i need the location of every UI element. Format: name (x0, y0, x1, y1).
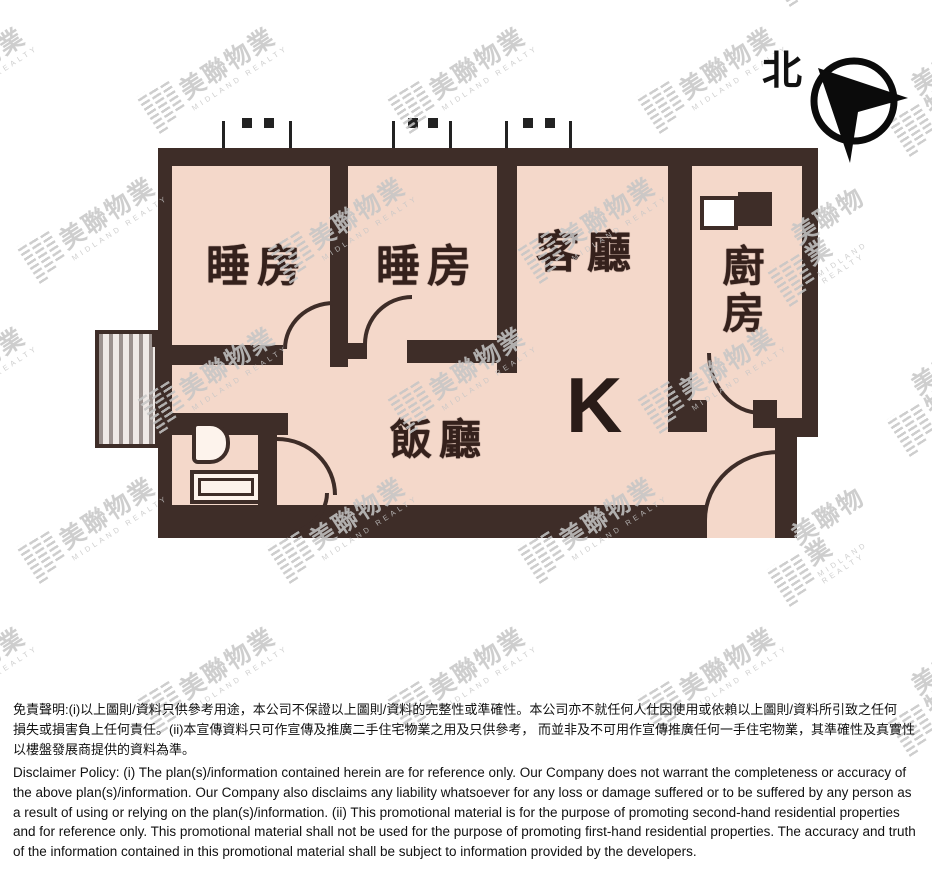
window-tick (222, 121, 225, 148)
compass-icon (808, 54, 912, 166)
midland-logo-icon (886, 400, 932, 457)
window-sash (408, 118, 418, 128)
watermark-subtext: MIDLAND REALTY (816, 217, 909, 285)
watermark-subtext: MIDLAND REALTY (70, 494, 169, 562)
window-sash (523, 118, 533, 128)
disclaimer-block: 免責聲明:(i)以上圖則/資料只供參考用途，本公司不保證以上圖則/資料的完整性或… (13, 700, 919, 862)
watermark-text: 美聯物業 (0, 621, 34, 704)
exterior-patch (797, 437, 818, 538)
disclaimer-en-text: Disclaimer Policy: (i) The plan(s)/infor… (13, 763, 919, 862)
midland-logo-icon (766, 0, 820, 7)
midland-watermark: 美聯物業MIDLAND REALTY (0, 13, 40, 134)
window-sash (242, 118, 252, 128)
kitchen-counter-icon (738, 192, 772, 226)
wall-living-divider (497, 166, 517, 373)
wall-top (158, 148, 818, 166)
window-tick (289, 121, 292, 148)
window-sash (428, 118, 438, 128)
watermark-subtext: MIDLAND REALTY (70, 194, 169, 262)
window-tick (505, 121, 508, 148)
floor-plan: 睡房 睡房 客廳 廚房 飯廳 K (158, 148, 818, 538)
watermark-text: 美聯物業 (56, 471, 165, 554)
wall-right-upper (802, 148, 818, 437)
watermark-subtext: MIDLAND REALTY (0, 44, 40, 112)
watermark-subtext: MIDLAND REALTY (816, 517, 909, 585)
window-ticks-2 (392, 118, 452, 148)
wall-bathroom-top (172, 413, 288, 435)
watermark-text: 美聯物業 (176, 21, 285, 104)
disclaimer-cn-line3: 以樓盤發展商提供的資料為準。 (13, 740, 919, 760)
ac-platform-hatched (95, 330, 159, 448)
bedroom1-label: 睡房 (206, 230, 308, 294)
window-tick (569, 121, 572, 148)
window-sash (264, 118, 274, 128)
bedroom2-label: 睡房 (376, 230, 478, 294)
watermark-text: 美聯物業 (676, 621, 785, 704)
window-ticks-3 (505, 118, 572, 148)
watermark-text: 美聯物業 (0, 21, 34, 104)
midland-logo-icon (636, 77, 690, 134)
wall-bedroom2-bottom-left (330, 343, 367, 359)
watermark-text: 美聯物業 (426, 621, 535, 704)
midland-watermark: 美聯物業MIDLAND REALTY (136, 13, 290, 134)
midland-logo-icon (16, 527, 70, 584)
north-label: 北 (762, 38, 802, 96)
wall-kitchen-bottom-left (668, 400, 707, 432)
disclaimer-cn-line1: 免責聲明:(i)以上圖則/資料只供參考用途，本公司不保證以上圖則/資料的完整性或… (13, 700, 919, 720)
watermark-subtext: MIDLAND REALTY (440, 44, 539, 112)
wall-kitchen-divider (668, 166, 692, 430)
window-ticks-1 (222, 118, 292, 148)
midland-logo-icon (766, 550, 820, 607)
watermark-subtext: MIDLAND REALTY (190, 44, 289, 112)
window-tick (449, 121, 452, 148)
sink-basin-inner (198, 478, 254, 496)
midland-logo-icon (16, 227, 70, 284)
kitchen-label: 廚房 (710, 244, 771, 338)
bathroom-sink-icon (190, 470, 262, 504)
midland-logo-icon (136, 77, 190, 134)
midland-watermark: 美聯物業MIDLAND REALTY (874, 347, 932, 457)
midland-watermark: 美聯物業MIDLAND REALTY (386, 13, 540, 134)
wall-left (158, 148, 172, 538)
midland-watermark: 美聯物業MIDLAND REALTY (16, 163, 170, 284)
wall-bottom (158, 505, 707, 538)
unit-letter-label: K (566, 360, 622, 451)
living-room-label: 客廳 (536, 216, 638, 280)
wall-bedroom1-bottom (172, 345, 283, 365)
watermark-text: 美聯物業 (426, 21, 535, 104)
watermark-text: 美聯物業 (908, 347, 932, 421)
kitchen-sink-icon (700, 196, 738, 230)
disclaimer-cn-line2: 損失或損害負上任何責任。(ii)本宣傳資料只可作宣傳及推廣二手住宅物業之用及只供… (13, 720, 919, 740)
dining-room-label: 飯廳 (390, 406, 488, 467)
midland-watermark: 美聯物業MIDLAND REALTY (754, 0, 910, 7)
window-sash (545, 118, 555, 128)
floor-plan-page: 美聯物業MIDLAND REALTY美聯物業MIDLAND REALTY美聯物業… (0, 0, 932, 871)
watermark-text: 美聯物業 (176, 621, 285, 704)
midland-watermark: 美聯物業MIDLAND REALTY (16, 463, 170, 584)
watermark-subtext: MIDLAND REALTY (0, 344, 40, 412)
toilet-icon (192, 422, 230, 464)
watermark-text: 美聯物業 (56, 171, 165, 254)
watermark-text: 美聯物業 (0, 321, 34, 404)
midland-watermark: 美聯物業MIDLAND REALTY (0, 313, 40, 434)
window-tick (392, 121, 395, 148)
